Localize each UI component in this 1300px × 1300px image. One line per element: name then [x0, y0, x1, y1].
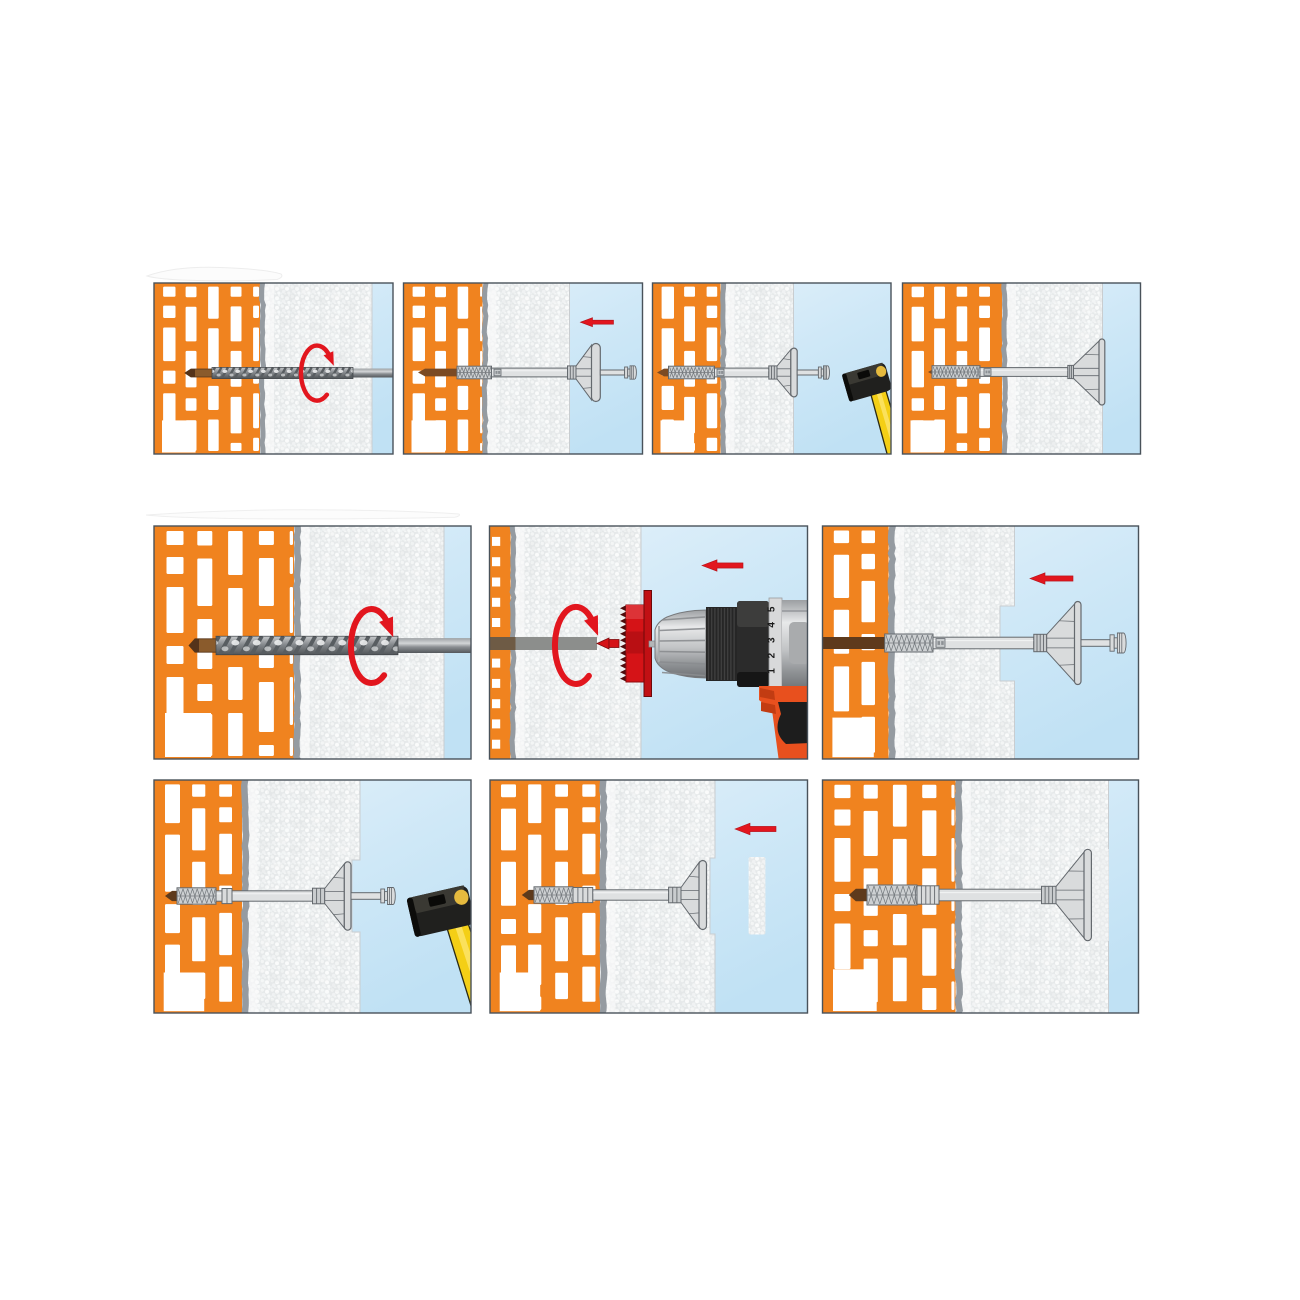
svg-text:3: 3 [767, 637, 778, 643]
svg-text:4: 4 [767, 622, 778, 628]
svg-text:2: 2 [767, 652, 778, 658]
svg-text:5: 5 [767, 606, 778, 612]
svg-text:1: 1 [767, 668, 778, 674]
